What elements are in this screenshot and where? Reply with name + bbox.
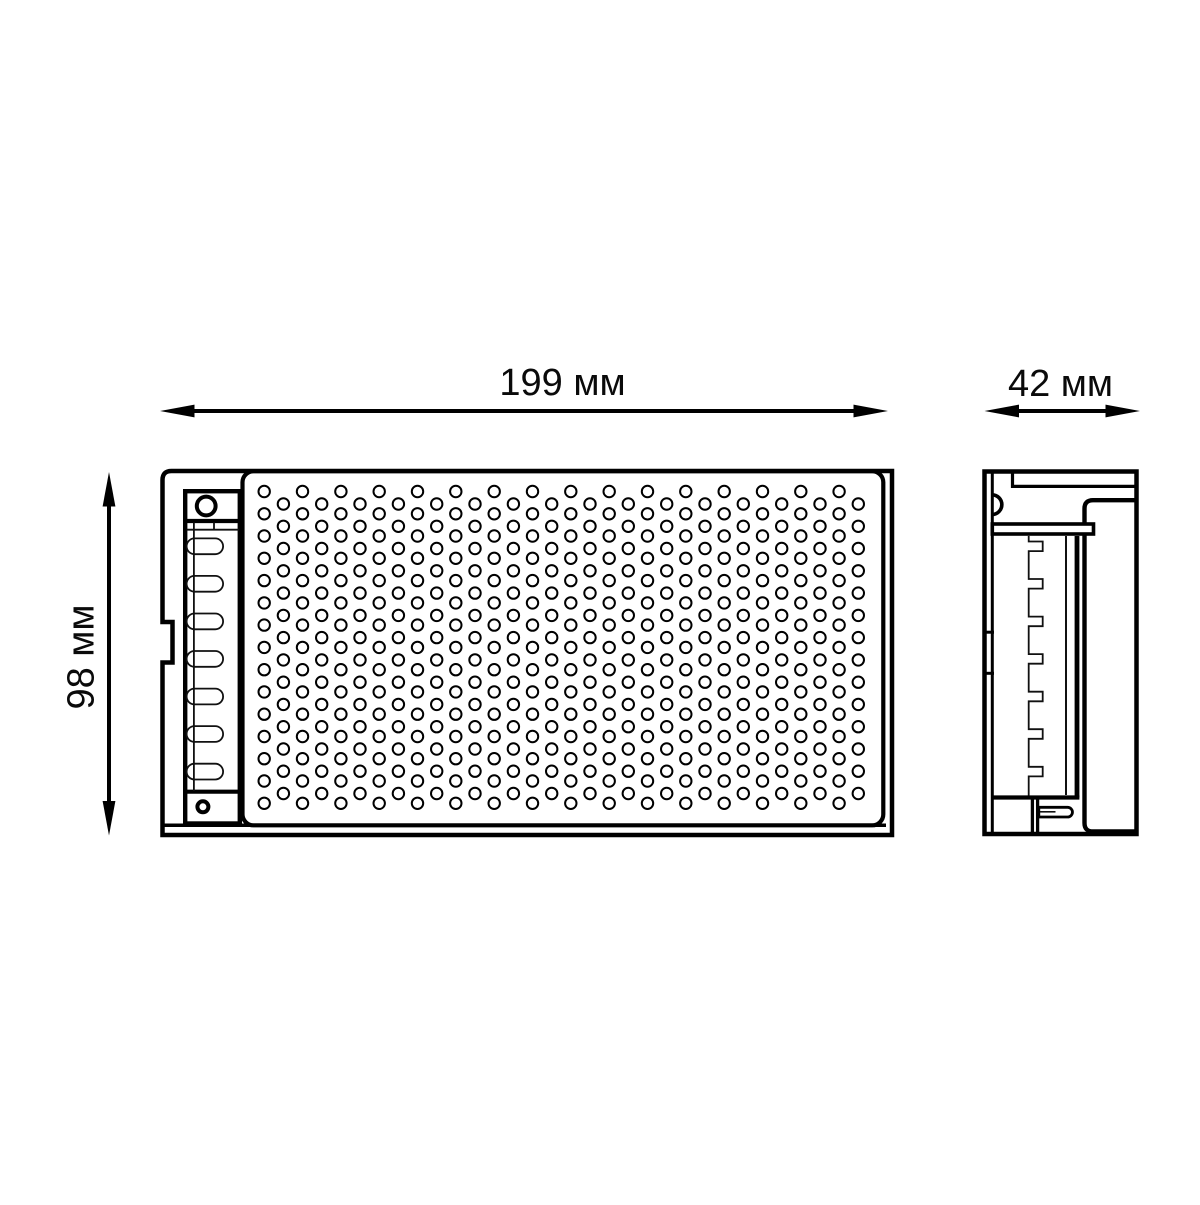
- svg-text:98 мм: 98 мм: [61, 604, 103, 709]
- svg-text:199 мм: 199 мм: [499, 362, 625, 404]
- svg-text:42 мм: 42 мм: [1008, 363, 1113, 405]
